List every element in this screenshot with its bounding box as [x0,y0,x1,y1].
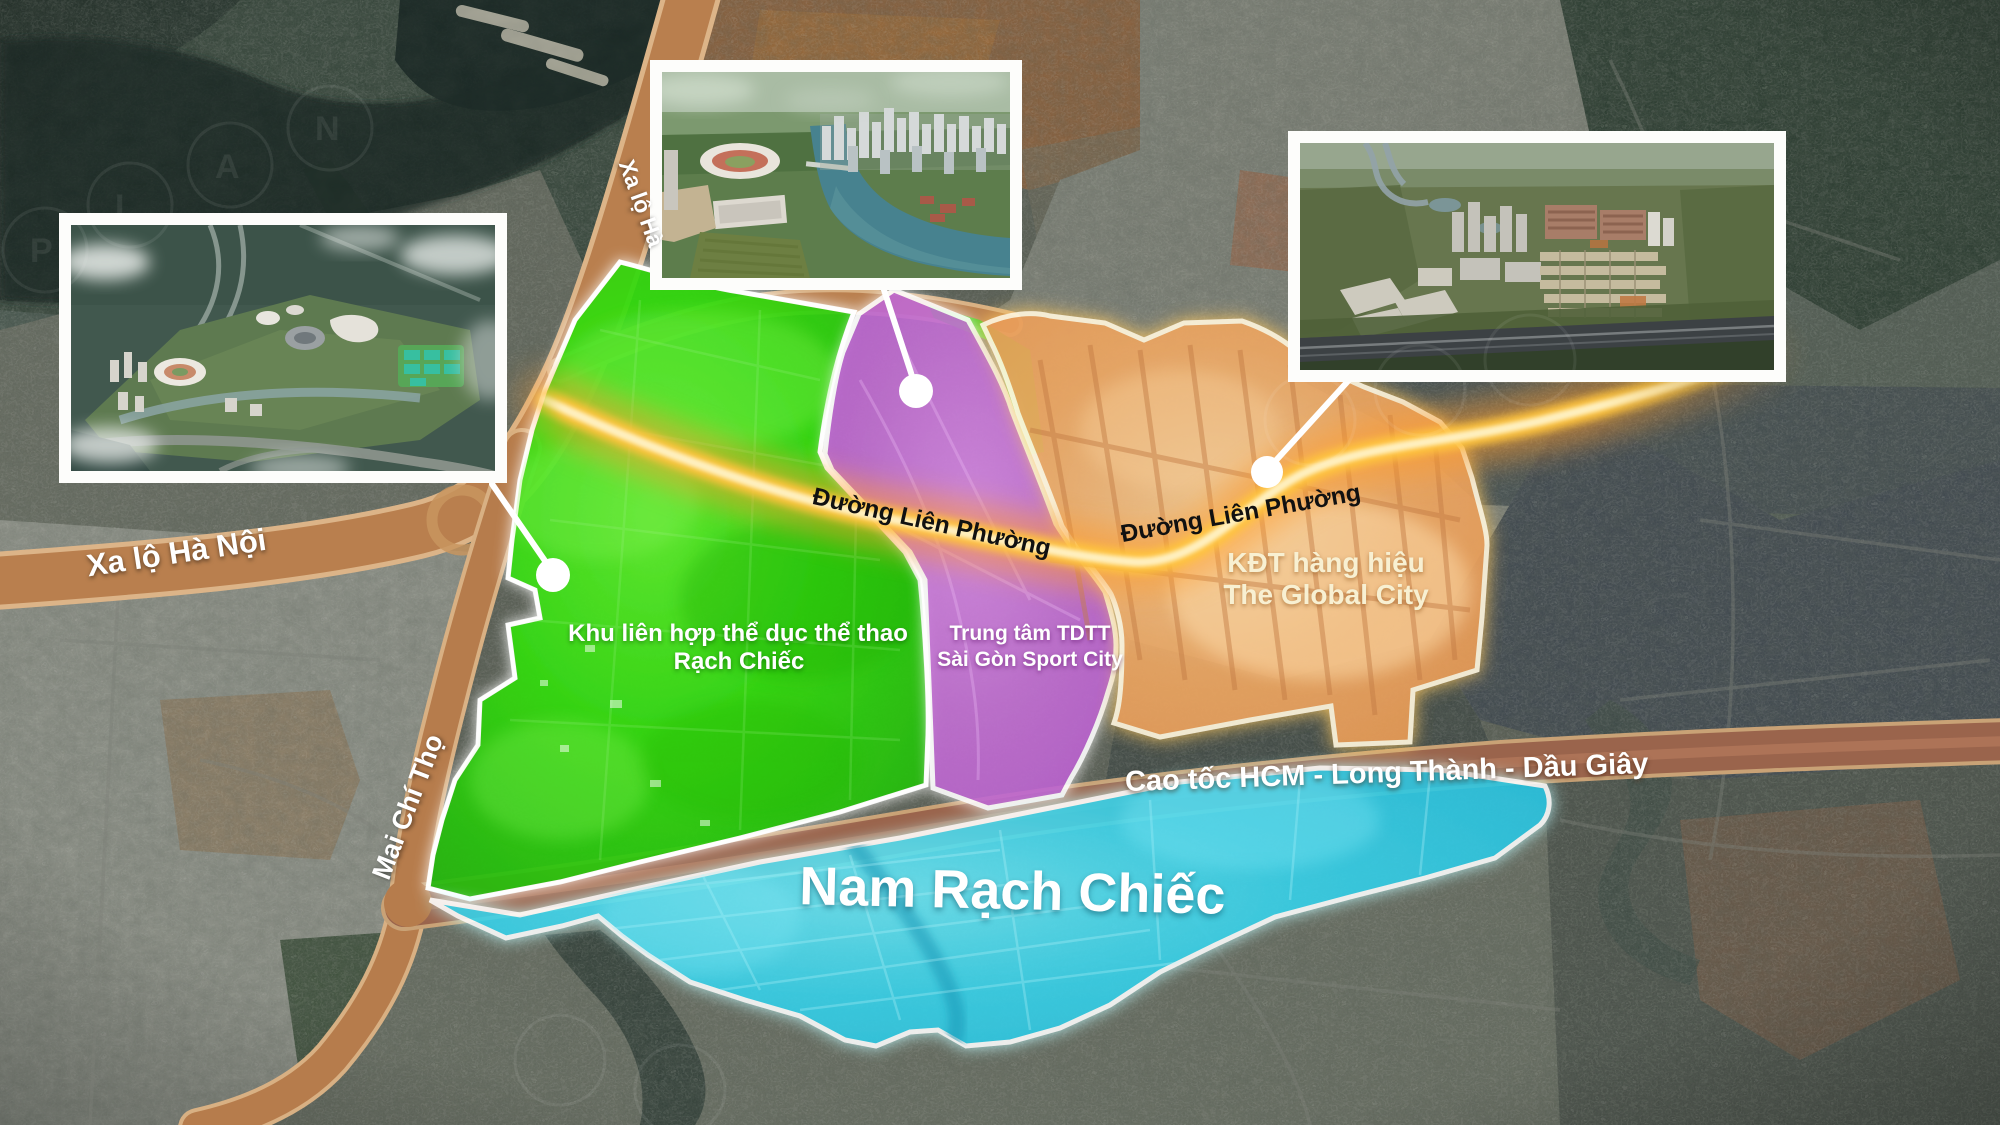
svg-text:N: N [315,110,340,148]
svg-text:L: L [115,188,136,226]
svg-text:Nam Rạch Chiếc: Nam Rạch Chiếc [799,856,1226,926]
svg-text:Trung tâm TDTT: Trung tâm TDTT [950,622,1111,645]
svg-text:Sài Gòn Sport City: Sài Gòn Sport City [937,648,1123,671]
svg-text:A: A [215,148,240,186]
svg-text:The Global City: The Global City [1223,579,1429,610]
svg-text:KĐT hàng hiệu: KĐT hàng hiệu [1227,547,1425,578]
svg-text:P: P [30,232,53,270]
svg-text:Khu liên hợp thể dục thể thao: Khu liên hợp thể dục thể thao [568,620,908,647]
svg-text:Rạch Chiếc: Rạch Chiếc [674,648,805,675]
